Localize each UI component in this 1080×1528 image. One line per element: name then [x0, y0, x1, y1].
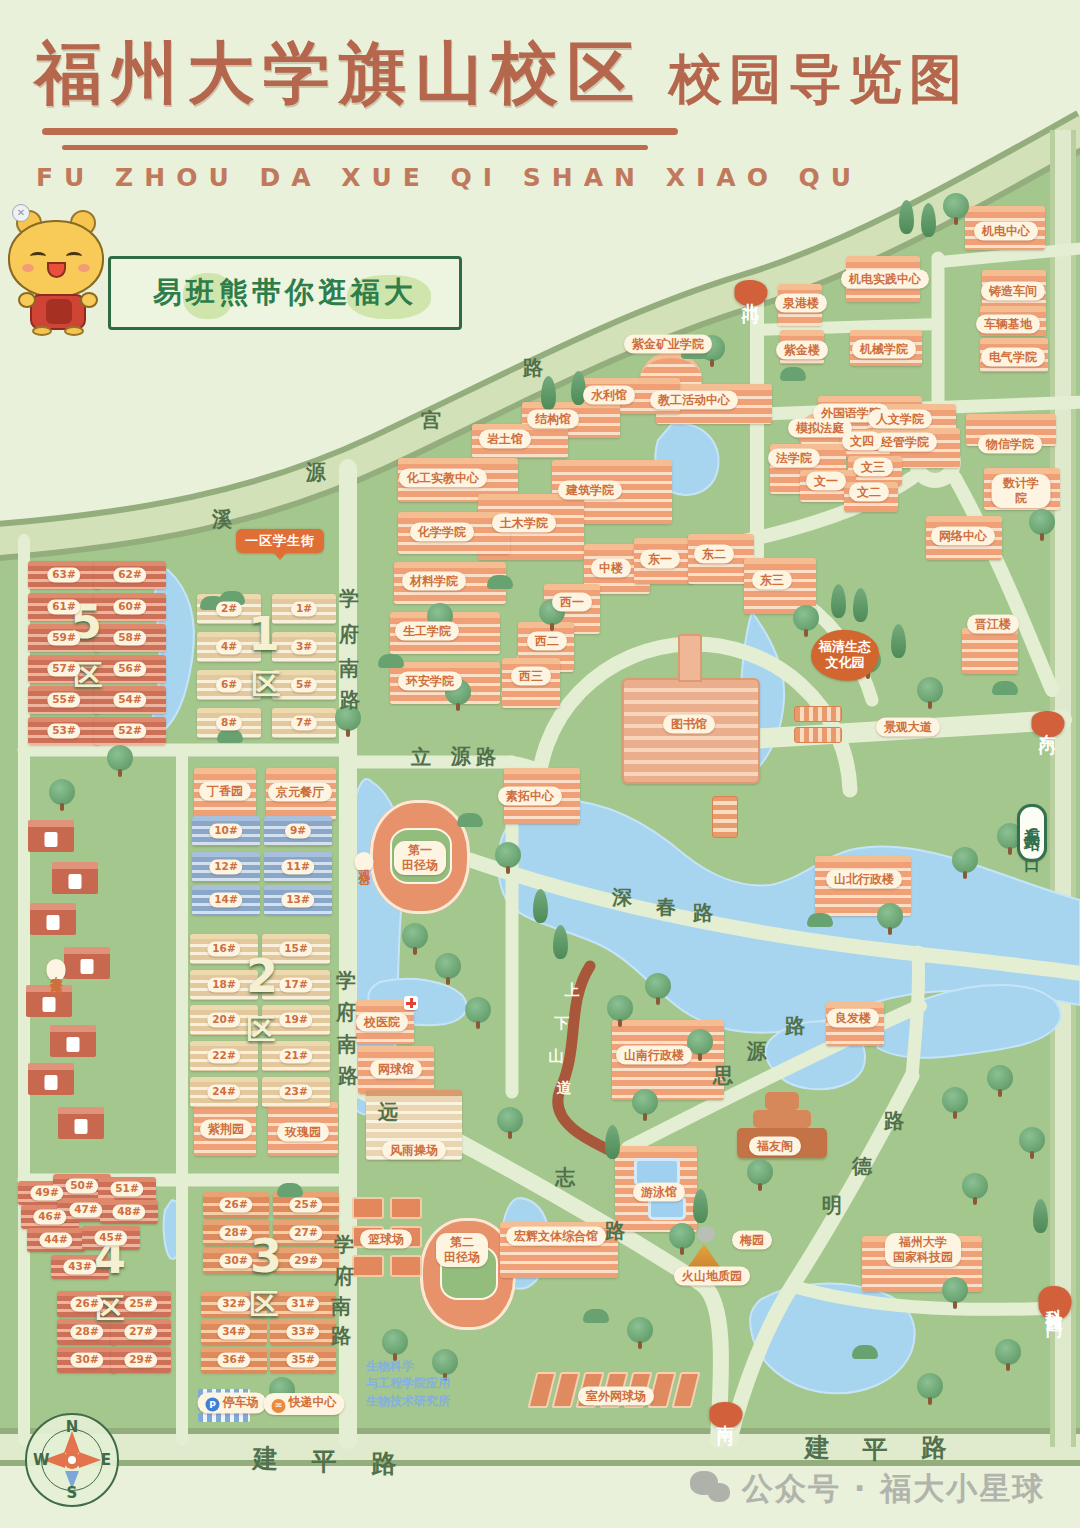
bear-foot — [64, 326, 84, 336]
building-label: 电气学院 — [981, 348, 1045, 367]
road-name-char: 路 — [693, 900, 713, 927]
compass: N S W E — [25, 1413, 119, 1507]
wechat-icon — [690, 1471, 732, 1507]
dorm-label: 30# — [219, 1253, 252, 1268]
dorm-label: 26# — [219, 1197, 252, 1212]
mail-icon: ✉ — [272, 1399, 286, 1413]
bear-eye — [66, 252, 82, 261]
dorm-label: 18# — [207, 977, 240, 992]
gate-east: 东门 — [1032, 711, 1065, 737]
building-label: 京元餐厅 — [268, 783, 332, 802]
tree — [217, 729, 243, 743]
pag2-shape — [753, 1110, 811, 1128]
dorm-label: 10# — [209, 823, 242, 838]
tree — [487, 575, 513, 589]
building-label: 紫金楼 — [776, 341, 828, 360]
building-label: 铸造车间 — [981, 282, 1045, 301]
court-shape — [352, 1197, 384, 1219]
dorm-label: 59# — [47, 630, 80, 645]
dorm-label: 31# — [286, 1296, 319, 1311]
tree — [632, 1089, 658, 1115]
tree — [780, 367, 806, 381]
house — [28, 1063, 74, 1095]
library-label: 图书馆 — [663, 715, 715, 734]
title-underline — [42, 128, 678, 135]
tree — [877, 903, 903, 929]
dorm-label: 36# — [217, 1352, 250, 1367]
tree — [921, 203, 936, 237]
dorm-label: 9# — [285, 823, 311, 838]
building-label: 西二 — [527, 632, 567, 651]
pag2-shape — [765, 1092, 799, 1110]
bridgeV-shape — [712, 796, 738, 838]
road-name-char: 学 — [334, 1231, 354, 1258]
district-number: 1 — [248, 607, 280, 661]
building-label: 福友阁 — [749, 1137, 801, 1156]
dorm-label: 7# — [291, 715, 317, 730]
road-name-char: 立 — [411, 744, 431, 771]
district-number: 区 — [252, 665, 281, 705]
watermark-text: 公众号 · 福大小星球 — [742, 1468, 1045, 1510]
building-label: 第一 田径场 — [394, 841, 446, 875]
building-label: 山南行政楼 — [616, 1046, 692, 1065]
building-label: 文四 — [842, 432, 882, 451]
district-number: 3 — [250, 1229, 282, 1283]
road-name-char: 宫 — [421, 407, 441, 434]
tree — [942, 1087, 968, 1113]
building-label: 梅园 — [732, 1231, 772, 1250]
building-label: 水利馆 — [583, 386, 635, 405]
dorm-label: 58# — [113, 630, 146, 645]
dorm-label: 17# — [279, 977, 312, 992]
tree — [277, 1183, 303, 1197]
bridge-shape — [794, 706, 842, 722]
building-label: 福清生态 文化园 — [811, 630, 879, 681]
building-label: 生工学院 — [395, 622, 459, 641]
smoke-shape — [697, 1226, 715, 1242]
tree — [533, 889, 548, 923]
tree — [607, 995, 633, 1021]
compass-south: S — [67, 1484, 78, 1502]
road-name-char: 春 — [656, 894, 676, 921]
tree — [852, 1345, 878, 1359]
building-label: 游泳馆 — [633, 1183, 685, 1202]
dorm-label: 44# — [39, 1232, 72, 1247]
dorm-label: 14# — [209, 892, 242, 907]
building-label: 数计学院 — [992, 474, 1051, 508]
dorm-label: 53# — [47, 723, 80, 738]
mascot-bear: ✕ — [6, 206, 110, 340]
building-label: 网络中心 — [931, 527, 995, 546]
dorm-label: 26# — [70, 1296, 103, 1311]
building-label: 经管学院 — [873, 433, 937, 452]
dorm-label: 8# — [216, 715, 242, 730]
dorm-label: 23# — [279, 1084, 312, 1099]
road-name-char: 思 — [713, 1062, 733, 1089]
building-label: 泉港楼 — [775, 294, 827, 313]
building-label: 化学学院 — [410, 523, 474, 542]
dorm-label: 34# — [217, 1324, 250, 1339]
road-name-char: 路 — [372, 1447, 397, 1480]
tree — [382, 1329, 408, 1355]
dorm-label: 52# — [113, 723, 146, 738]
dorm-label: 28# — [219, 1225, 252, 1240]
building-label: 法学院 — [768, 449, 820, 468]
road-name-char: 南 — [337, 1031, 357, 1058]
road-name-char: 道 — [557, 1079, 572, 1098]
building-label: ✉快递中心 — [264, 1393, 345, 1415]
dorm-label: 25# — [289, 1197, 322, 1212]
road-name-char: 路 — [785, 1013, 805, 1040]
title-underline-2 — [62, 145, 648, 150]
tree — [995, 1339, 1021, 1365]
building-label: 景观大道 — [876, 718, 940, 737]
building-label: 网球馆 — [370, 1060, 422, 1079]
building-label: 结构馆 — [527, 410, 579, 429]
road-name-char: 路 — [922, 1431, 947, 1464]
page-subtitle: FU ZHOU DA XUE QI SHAN XIAO QU — [36, 163, 862, 192]
building-label: 东一 — [640, 550, 680, 569]
dorm-label: 32# — [217, 1296, 250, 1311]
dorm-label: 28# — [70, 1324, 103, 1339]
bear-head — [8, 220, 104, 298]
building-label: 紫金矿业学院 — [624, 335, 712, 354]
campus-map: 63#62#61#60#59#58#57#56#55#54#53#52#2#1#… — [0, 0, 1080, 1528]
tree — [992, 681, 1018, 695]
road-name-char: 下 — [555, 1014, 570, 1033]
dorm-label: 54# — [113, 692, 146, 707]
dorm-label: 4# — [216, 639, 242, 654]
road-name-char: 南 — [339, 655, 359, 682]
tree — [747, 1159, 773, 1185]
building-label: 晋江楼 — [967, 615, 1019, 634]
house — [58, 1107, 104, 1139]
gate-north: 北门 — [735, 280, 768, 306]
building-label: 风雨操场 — [382, 1141, 446, 1160]
road-name-char: 上 — [565, 981, 580, 1000]
road-name-char: 源 — [306, 459, 326, 486]
park-shape — [198, 1413, 250, 1422]
dorm-label: 57# — [47, 661, 80, 676]
house — [28, 820, 74, 852]
road-name-char: 源 — [451, 743, 471, 770]
tree — [465, 997, 491, 1023]
compass-east: E — [101, 1451, 111, 1469]
building-label: 玫瑰园 — [277, 1123, 329, 1142]
building-label: 西三 — [511, 667, 551, 686]
building-label: 建筑学院 — [558, 481, 622, 500]
road-name-char: 路 — [338, 1063, 358, 1090]
dorm-label: 16# — [207, 941, 240, 956]
house — [52, 862, 98, 894]
building-label: 校医院 — [356, 1013, 408, 1032]
road-name-char: 路 — [476, 744, 496, 771]
tree — [793, 605, 819, 631]
road-name-char: 南 — [331, 1293, 351, 1320]
road-name-char: 路 — [331, 1323, 351, 1350]
building-label: 文一 — [806, 472, 846, 491]
banner: 易班熊带你逛福大 — [108, 256, 462, 330]
dorm-label: 21# — [279, 1048, 312, 1063]
title-bar: 福州大学旗山校区 校园导览图 — [35, 28, 1055, 119]
dorm-label: 63# — [47, 567, 80, 582]
dorm-label: 12# — [209, 859, 242, 874]
road-name-char: 平 — [863, 1433, 888, 1466]
tree — [891, 624, 906, 658]
building-label: 丁香园 — [199, 782, 251, 801]
dorm-label: 46# — [33, 1209, 66, 1224]
building-label: 室外网球场 — [578, 1387, 654, 1406]
dorm-label: 33# — [286, 1324, 319, 1339]
bear-foot — [32, 326, 52, 336]
dorm-label: 1# — [291, 601, 317, 616]
tree — [853, 588, 868, 622]
court2-shape — [672, 1372, 701, 1408]
house — [64, 947, 110, 979]
building-label: 生物科学 与工程学院应用 生物技术研究所 — [366, 1358, 450, 1410]
compass-west: W — [33, 1451, 50, 1469]
building-label: 东二 — [694, 545, 734, 564]
tree — [605, 1125, 620, 1159]
bear-eye — [30, 252, 46, 261]
dorm-label: 24# — [207, 1084, 240, 1099]
road-name-char: 深 — [612, 884, 632, 911]
banner-text: 易班熊带你逛福大 — [153, 273, 417, 313]
building-label: 观众台 — [355, 852, 374, 872]
dorm-label: 48# — [112, 1204, 145, 1219]
court-shape — [352, 1255, 384, 1277]
tree — [917, 677, 943, 703]
road-name-char: 府 — [339, 621, 359, 648]
tree — [669, 1223, 695, 1249]
bear-arm — [18, 292, 36, 308]
dorm-label: 29# — [289, 1253, 322, 1268]
bear-blush — [22, 264, 34, 272]
tree — [1033, 1199, 1048, 1233]
road-name-char: 路 — [523, 355, 543, 382]
road-name-char: 路 — [884, 1108, 904, 1135]
road-name-char: 山 — [549, 1047, 564, 1066]
bear-blush — [78, 264, 90, 272]
dorm-label: 62# — [113, 567, 146, 582]
libtower-shape — [678, 634, 702, 682]
building-label: 化工实教中心 — [399, 469, 487, 488]
building-label: 篮球场 — [360, 1230, 412, 1249]
tree — [962, 1173, 988, 1199]
dorm-label: 56# — [113, 661, 146, 676]
dorm-label: 35# — [286, 1352, 319, 1367]
tree — [583, 1309, 609, 1323]
tree — [497, 1107, 523, 1133]
road-name-char: 平 — [312, 1445, 337, 1478]
building-label: 人文学院 — [868, 410, 932, 429]
road-name-char: 远 — [378, 1099, 398, 1126]
road-name-char: 志 — [555, 1164, 575, 1191]
building-label: 环安学院 — [398, 672, 462, 691]
dorm-label: 61# — [47, 599, 80, 614]
metro-sign: 福大站C口 — [1017, 804, 1047, 862]
dorm-label: 29# — [124, 1352, 157, 1367]
bear-arm — [80, 292, 98, 308]
road-name-char: 学 — [339, 585, 359, 612]
tree — [435, 953, 461, 979]
tree — [807, 913, 833, 927]
building-label: 文三 — [853, 458, 893, 477]
building-label: 专家公寓 — [47, 959, 66, 981]
building-label: 土木学院 — [492, 514, 556, 533]
district-number: 区 — [74, 656, 103, 696]
dorm-label: 11# — [281, 859, 314, 874]
building-label: 西一 — [552, 593, 592, 612]
dorm-label: 30# — [70, 1352, 103, 1367]
tree — [627, 1317, 653, 1343]
building-label: 第二 田径场 — [436, 1233, 488, 1267]
tree — [1029, 509, 1055, 535]
compass-north: N — [66, 1418, 79, 1436]
road-name-char: 建 — [805, 1431, 830, 1464]
dorm-label: 6# — [216, 677, 242, 692]
tree — [107, 745, 133, 771]
tree — [495, 842, 521, 868]
building-label: 宏辉文体综合馆 — [506, 1227, 606, 1246]
dorm-label: 49# — [30, 1185, 63, 1200]
tree — [541, 376, 556, 410]
court-shape — [390, 1197, 422, 1219]
dorm-label: 43# — [63, 1259, 96, 1274]
bear-bib — [46, 299, 72, 324]
building-label: 材料学院 — [402, 572, 466, 591]
building-label: 中楼 — [591, 559, 631, 578]
road-name-char: 路 — [605, 1218, 625, 1245]
dorm-label: 55# — [47, 692, 80, 707]
road-name-char: 建 — [253, 1442, 278, 1475]
bridge-shape — [794, 727, 842, 743]
tree — [645, 973, 671, 999]
building — [962, 628, 1018, 674]
dorm-label: 3# — [291, 639, 317, 654]
building-label: 福州大学 国家科技园 — [885, 1233, 961, 1267]
building-label: 机械学院 — [852, 340, 916, 359]
tree — [693, 1189, 708, 1223]
building-label: 东三 — [752, 571, 792, 590]
tree — [831, 584, 846, 618]
patch-icon: ✕ — [12, 204, 30, 222]
tree — [402, 923, 428, 949]
building-label: P停车场 — [198, 1393, 267, 1414]
road-name-char: 源 — [747, 1038, 767, 1065]
watermark: 公众号 · 福大小星球 — [690, 1468, 1045, 1510]
tree — [952, 847, 978, 873]
tree — [942, 1277, 968, 1303]
road-name-char: 学 — [336, 967, 356, 994]
dorm-label: 50# — [65, 1178, 98, 1193]
building-label: 山北行政楼 — [826, 870, 902, 889]
building-label: 火山地质园 — [674, 1267, 750, 1286]
building-label: 紫荆园 — [200, 1120, 252, 1139]
tree — [378, 654, 404, 668]
gate-techpark: 科技园门 — [1039, 1286, 1072, 1320]
road-name-char: 德 — [852, 1153, 872, 1180]
road-name-char: 溪 — [212, 506, 232, 533]
building-label: 机电中心 — [974, 222, 1038, 241]
dorm-label: 2# — [216, 601, 242, 616]
house — [26, 985, 72, 1017]
cross-shape — [404, 996, 418, 1010]
dorm-label: 60# — [113, 599, 146, 614]
road-name-char: 府 — [336, 999, 356, 1026]
tree — [1019, 1127, 1045, 1153]
dorm-label: 22# — [207, 1048, 240, 1063]
street-sign: 一区学生街 — [236, 529, 324, 553]
dorm-label: 45# — [94, 1230, 127, 1245]
building-label: 岩土馆 — [479, 430, 531, 449]
building-label: 模拟法庭 — [788, 419, 852, 438]
district-number: 区 — [247, 1010, 276, 1050]
district-number: 2 — [246, 949, 278, 1003]
dorm-label: 27# — [124, 1324, 157, 1339]
compass-center — [63, 1451, 81, 1469]
dorm-label: 25# — [124, 1296, 157, 1311]
building-label: 教工活动中心 — [650, 391, 738, 410]
dorm-label: 20# — [207, 1012, 240, 1027]
tree — [899, 200, 914, 234]
dorm-label: 19# — [279, 1012, 312, 1027]
parking-icon: P — [206, 1398, 220, 1412]
road-name-char: 明 — [822, 1192, 842, 1219]
road-name-char: 路 — [340, 687, 360, 714]
page-title: 福州大学旗山校区 — [35, 28, 643, 119]
tree — [49, 779, 75, 805]
tree — [987, 1065, 1013, 1091]
building-label: 机电实践中心 — [841, 270, 929, 289]
gate-south: 南门 — [710, 1402, 743, 1428]
district-number: 区 — [250, 1285, 279, 1325]
dorm-label: 27# — [289, 1225, 322, 1240]
building-label: 素拓中心 — [498, 787, 562, 806]
house — [50, 1025, 96, 1057]
house — [30, 903, 76, 935]
tree — [553, 925, 568, 959]
tree — [943, 193, 969, 219]
court-shape — [390, 1255, 422, 1277]
dorm-label: 51# — [110, 1181, 143, 1196]
dorm-label: 15# — [279, 941, 312, 956]
building-label: 车辆基地 — [976, 315, 1040, 334]
building-label: 物信学院 — [978, 435, 1042, 454]
dorm-label: 5# — [291, 677, 317, 692]
building-label: 良发楼 — [827, 1009, 879, 1028]
road-name-char: 府 — [334, 1263, 354, 1290]
tree — [457, 813, 483, 827]
building-label: 文二 — [849, 483, 889, 502]
tree — [917, 1373, 943, 1399]
dorm-label: 13# — [281, 892, 314, 907]
page-title-suffix: 校园导览图 — [669, 44, 969, 119]
dorm-label: 47# — [69, 1202, 102, 1217]
